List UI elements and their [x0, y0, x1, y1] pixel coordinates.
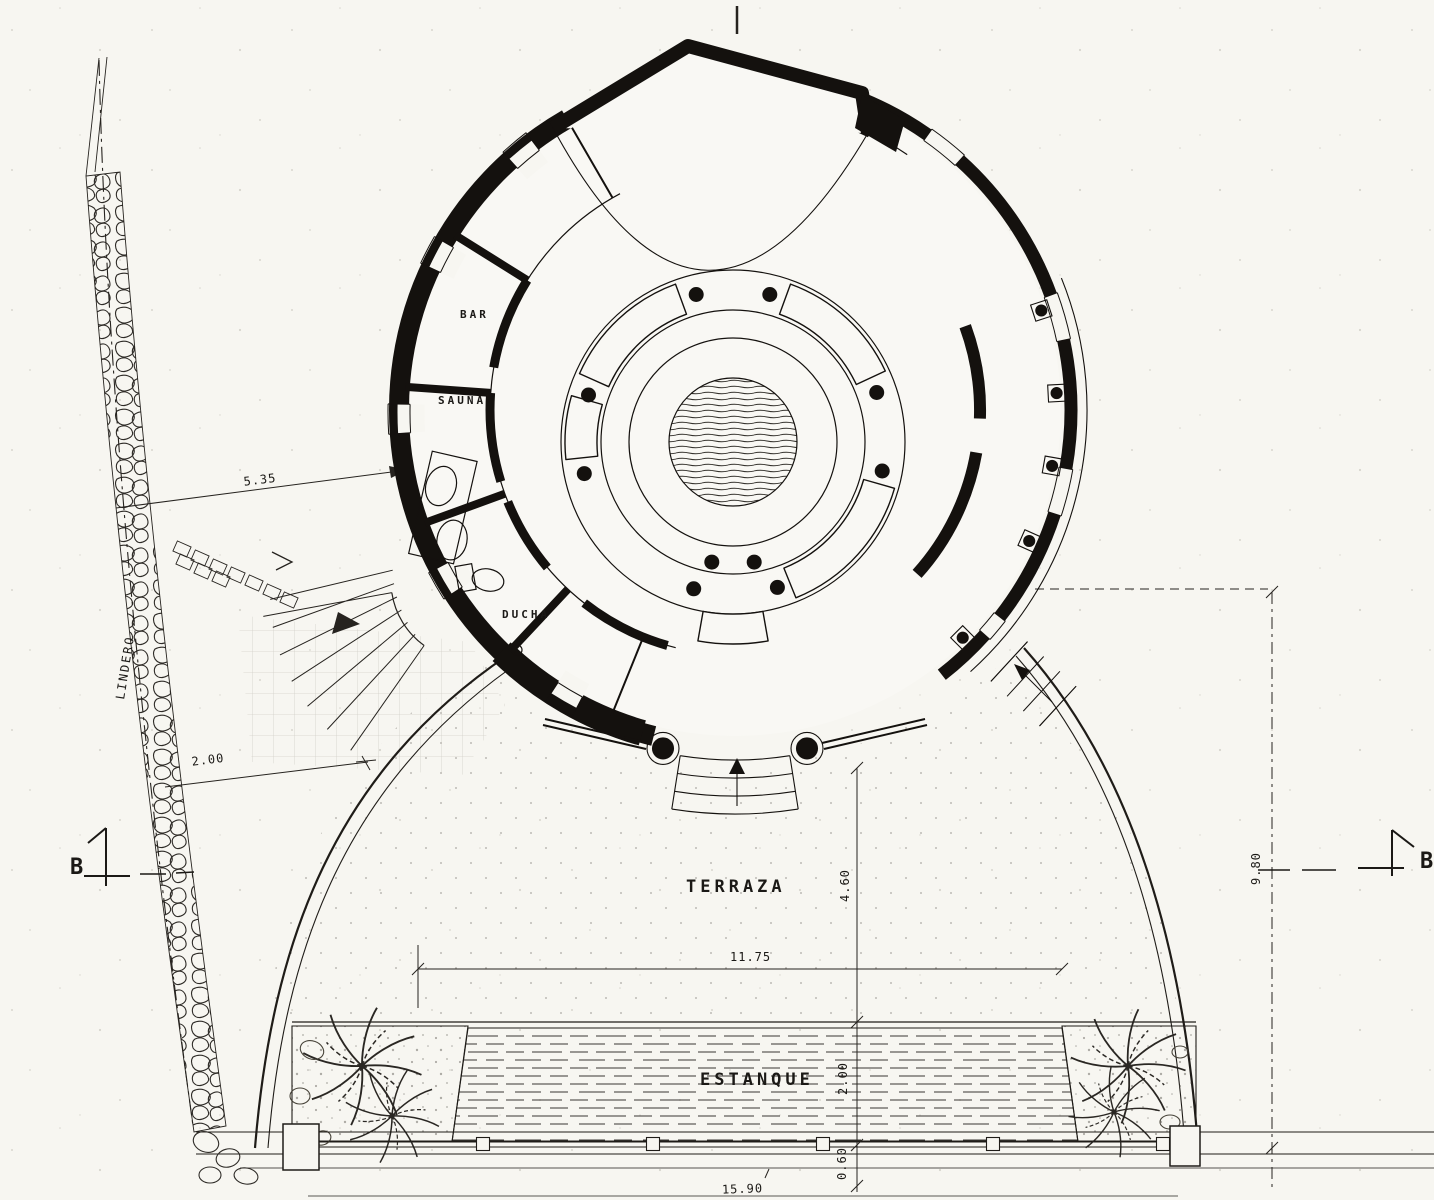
- dim-text-9-80: 9.80: [1249, 852, 1263, 885]
- railing-post: [477, 1138, 490, 1151]
- dim-text-0-60: 0.60: [835, 1147, 849, 1180]
- dim-text-2-00-pond: 2.00: [836, 1062, 850, 1095]
- fire-pit: [669, 378, 797, 506]
- railing-post: [647, 1138, 660, 1151]
- area-label-estanque: ESTANQUE: [700, 1070, 814, 1090]
- room-label-bar: BAR: [460, 308, 489, 321]
- floor-plan-sheet: BAR SAUNA DUCHA TERRAZA ESTANQUE LINDERO…: [0, 0, 1434, 1200]
- railing-post: [1157, 1138, 1170, 1151]
- room-label-ducha: DUCHA: [502, 608, 550, 621]
- corner-pillar-right: [1170, 1126, 1200, 1166]
- section-label-left: B: [70, 855, 83, 880]
- dim-text-15-90: 15.90: [722, 1181, 764, 1196]
- dim-text-11-75: 11.75: [730, 950, 771, 964]
- area-label-terraza: TERRAZA: [686, 877, 786, 897]
- section-label-right: B: [1420, 849, 1433, 874]
- floor-plan-drawing: BAR SAUNA DUCHA TERRAZA ESTANQUE LINDERO…: [0, 0, 1434, 1200]
- corner-pillar-left: [283, 1124, 319, 1170]
- dim-text-4-60: 4.60: [838, 869, 852, 902]
- railing-post: [987, 1138, 1000, 1151]
- railing-post: [817, 1138, 830, 1151]
- room-label-sauna: SAUNA: [438, 394, 486, 407]
